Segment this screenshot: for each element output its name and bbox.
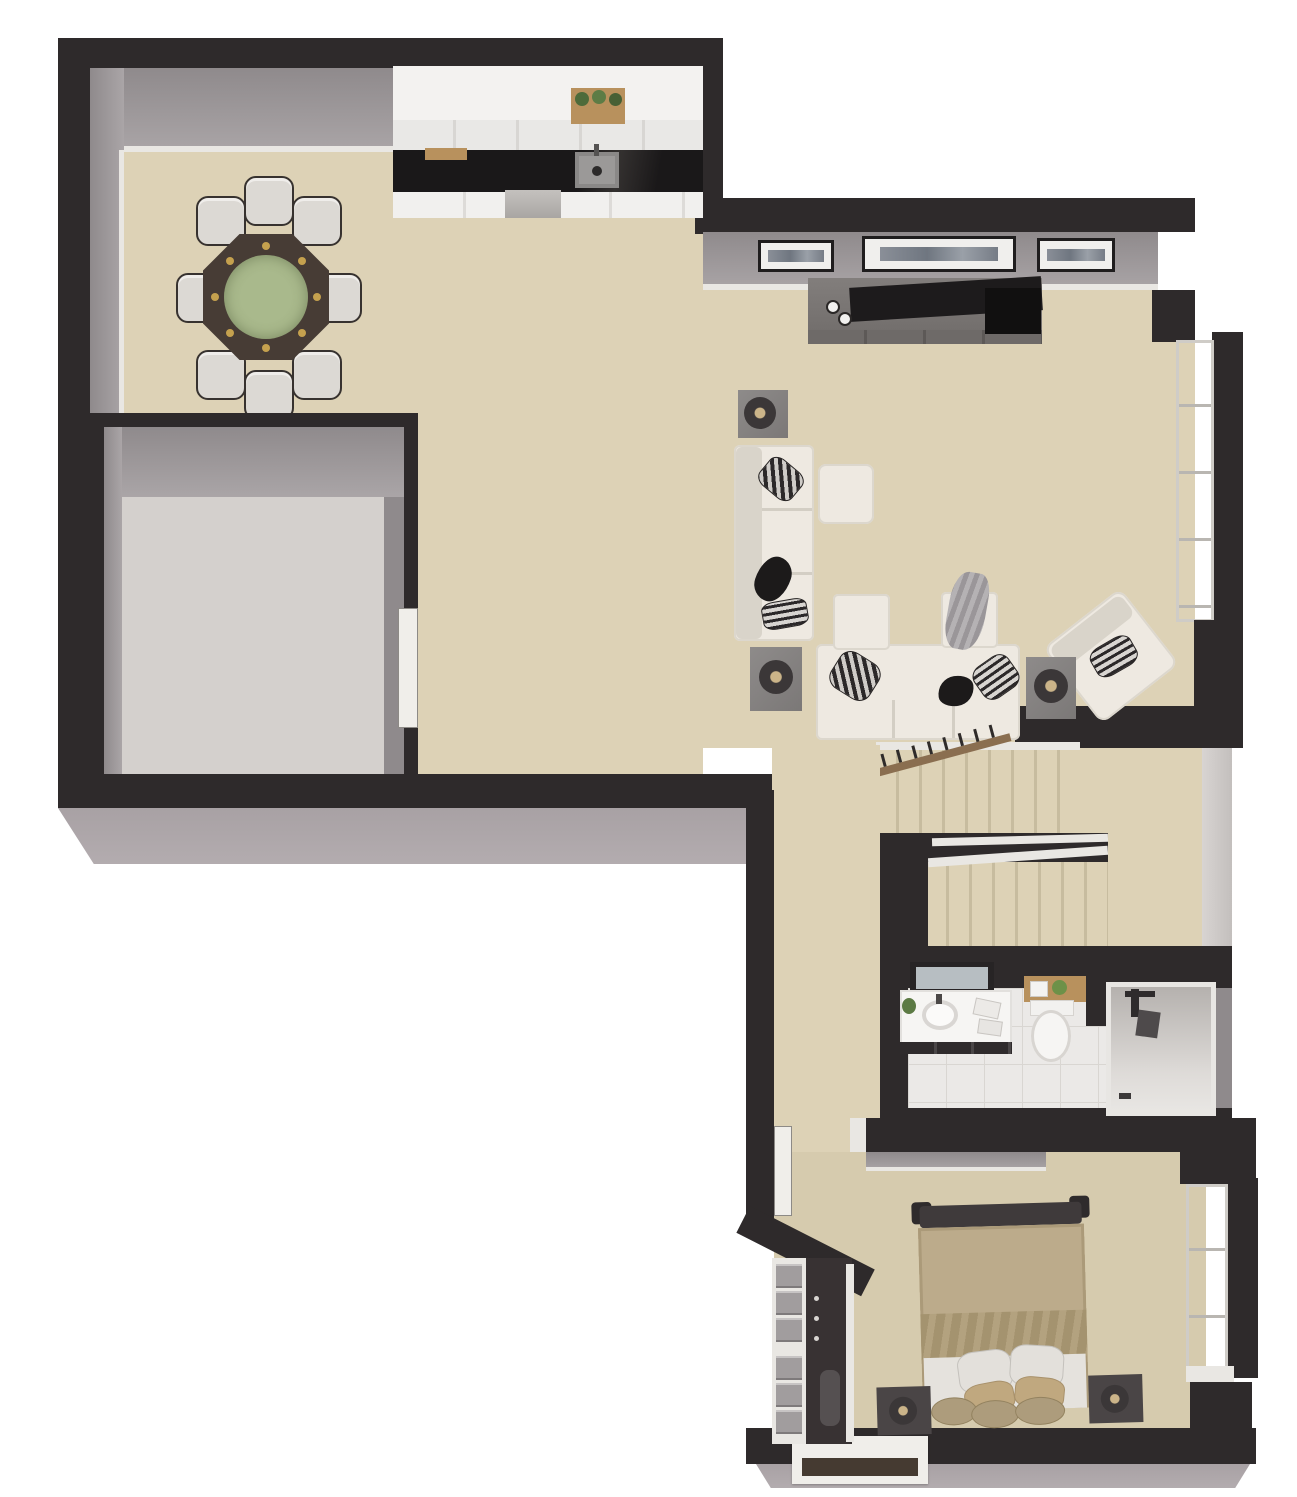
faucet-icon: [594, 144, 599, 156]
decor-orb: [838, 312, 852, 326]
range-icon: [505, 190, 561, 218]
garage-west-wall-face: [104, 427, 122, 787]
bedroom-bay-window: [1186, 1184, 1228, 1370]
living-bay-window: [1176, 340, 1214, 622]
dining-chair: [292, 350, 342, 400]
stair-side-wall: [880, 833, 928, 953]
wall-art-print: [1047, 249, 1105, 262]
table-lamp-icon: [759, 660, 793, 694]
cup-holder: [262, 344, 270, 352]
plant-icon: [592, 90, 606, 104]
cup-holder: [298, 257, 306, 265]
bedroom-ne-corner-wall: [1180, 1118, 1256, 1184]
hallway-west-wall: [746, 790, 774, 1232]
bedroom-north-baseboard: [866, 1167, 1046, 1171]
drawer: [776, 1356, 802, 1380]
stair-lower-flight: [926, 862, 1108, 950]
wall-art: [862, 236, 1016, 272]
closet-door: [846, 1264, 854, 1442]
kitchen-upper-cabinets-top: [393, 66, 703, 122]
mirror-glass: [916, 967, 988, 989]
wall-art-print: [768, 250, 824, 262]
vanity-counter: [900, 990, 1012, 1046]
plant-icon: [609, 93, 622, 106]
nightstand: [876, 1386, 931, 1435]
shower-partition-wall: [1086, 964, 1106, 1026]
bedroom-door-jamb: [850, 1118, 866, 1152]
cup-holder: [211, 293, 219, 301]
dining-west-baseboard: [119, 150, 124, 413]
north-exterior-wall: [58, 38, 704, 68]
chaise-cushion: [833, 594, 890, 650]
table-lamp-icon: [1034, 669, 1068, 703]
cup-holder: [226, 329, 234, 337]
table-lamp-icon: [744, 397, 776, 429]
wall-art-print: [880, 247, 998, 261]
box-window-opening: [802, 1458, 918, 1476]
baluster: [896, 749, 902, 762]
dining-table: [203, 234, 329, 360]
drawer: [776, 1264, 802, 1288]
wall-art: [1037, 238, 1115, 272]
dining-table-felt: [224, 255, 308, 339]
baluster: [880, 754, 886, 767]
sink-drain: [592, 166, 602, 176]
dining-north-wall-face: [90, 68, 395, 152]
side-table: [1026, 657, 1076, 719]
living-bay-outer-wall: [1212, 332, 1243, 630]
walk-in-shower: [1106, 982, 1216, 1116]
table-lamp-icon: [889, 1396, 918, 1425]
towel-roll: [1030, 981, 1048, 997]
cushion-seam: [762, 508, 812, 511]
nightstand: [1088, 1374, 1143, 1423]
stair-east-trim-wall: [1202, 748, 1232, 954]
cup-holder: [298, 329, 306, 337]
shower-arm: [1125, 991, 1155, 997]
table-lamp-icon: [1100, 1384, 1129, 1413]
dining-chair: [244, 176, 294, 226]
hanging-clothes: [820, 1370, 840, 1426]
hanger-hook: [814, 1316, 819, 1321]
living-east-wall-upper: [1152, 290, 1195, 342]
baluster: [989, 725, 995, 738]
cutting-board: [425, 148, 467, 160]
shower-head-icon: [1135, 1010, 1160, 1039]
vanity-sink: [922, 1000, 958, 1030]
bedroom-bay-sill: [1186, 1366, 1234, 1382]
garage-north-wall-face: [104, 427, 404, 497]
baluster: [958, 733, 964, 746]
folded-towels: [977, 1018, 1003, 1036]
plant-icon: [1052, 980, 1067, 995]
wall-art: [758, 240, 834, 272]
baluster: [973, 729, 979, 742]
vanity-drawers: [900, 1042, 1012, 1054]
south-exterior-wall-left: [58, 774, 774, 808]
drawer: [776, 1318, 802, 1342]
toilet-shelf: [1024, 976, 1088, 1002]
drawer: [776, 1291, 802, 1315]
baluster: [927, 741, 933, 754]
cup-holder: [226, 257, 234, 265]
tv-console-glass-panel: [985, 288, 1041, 334]
drawer: [776, 1410, 802, 1434]
faucet-icon: [936, 994, 942, 1004]
bedroom-bay-outer-wall: [1228, 1178, 1258, 1378]
garage-door: [398, 608, 418, 728]
plant-icon: [575, 92, 589, 106]
baluster: [942, 737, 948, 750]
folded-towels: [973, 997, 1002, 1019]
dining-chair: [292, 196, 342, 246]
garage-floor: [122, 497, 384, 787]
plant-icon: [902, 998, 916, 1014]
floor-plan-3d: [0, 0, 1297, 1497]
drawer: [776, 1383, 802, 1407]
cup-holder: [313, 293, 321, 301]
foundation-skirt-left: [58, 808, 774, 864]
hanger-hook: [814, 1296, 819, 1301]
bedroom-door-open: [774, 1126, 792, 1216]
living-north-wall: [703, 198, 1195, 232]
cup-holder: [262, 242, 270, 250]
toilet-bowl: [1031, 1010, 1071, 1062]
dining-north-baseboard: [90, 146, 395, 152]
shower-drain: [1119, 1093, 1131, 1099]
side-table: [750, 647, 802, 711]
ottoman: [818, 464, 874, 524]
hanger-hook: [814, 1336, 819, 1341]
side-table: [738, 390, 788, 438]
decor-orb: [826, 300, 840, 314]
west-exterior-wall: [58, 38, 90, 804]
baluster: [911, 745, 917, 758]
